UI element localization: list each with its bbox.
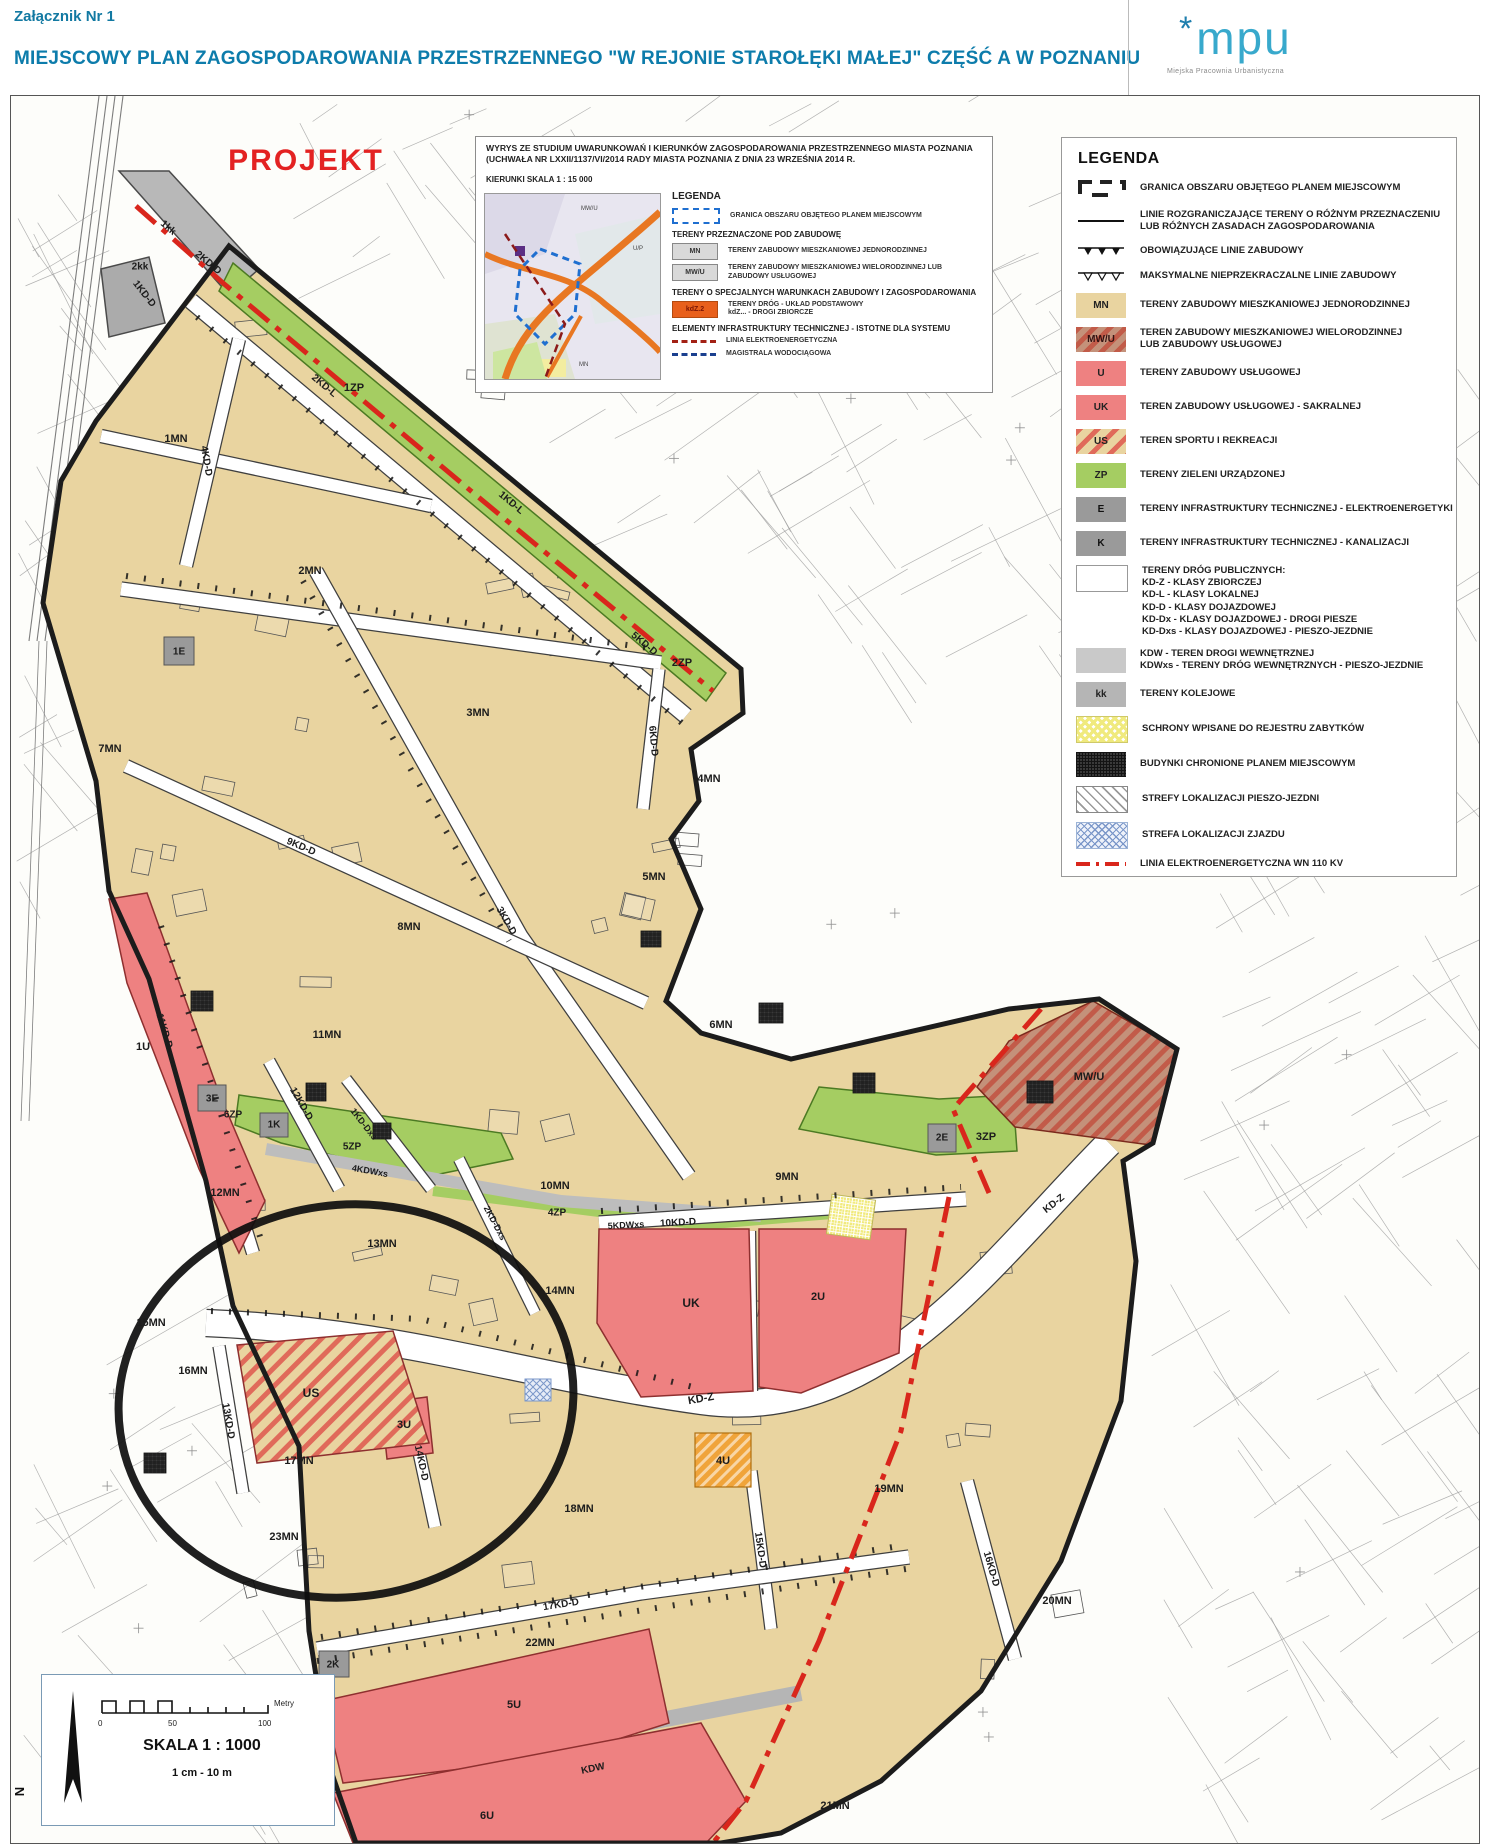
inset-map-label: MN bbox=[579, 362, 588, 368]
inset-legend-item: GRANICA OBSZARU OBJĘTEGO PLANEM MIEJSCOW… bbox=[672, 208, 984, 224]
u-swatch-icon: U bbox=[1076, 361, 1126, 386]
mwu-swatch-icon: MW/U bbox=[672, 264, 718, 281]
scale-bar-icon bbox=[98, 1689, 278, 1719]
inset-legend-item: MW/U TERENY ZABUDOWY MIESZKANIOWEJ WIELO… bbox=[672, 264, 984, 282]
inset-legend-item: MN TERENY ZABUDOWY MIESZKANIOWEJ JEDNORO… bbox=[672, 243, 984, 260]
k-swatch-icon: K bbox=[1076, 531, 1126, 556]
building-line-icon bbox=[1076, 243, 1126, 259]
mpu-logo-text: mpu bbox=[1196, 12, 1291, 64]
mpu-logo-mark: *mpu bbox=[1179, 10, 1292, 65]
mpu-logo: *mpu Miejska Pracownia Urbanistyczna bbox=[1128, 0, 1487, 95]
legend-item: MN TERENY ZABUDOWY MIESZKANIOWEJ JEDNORO… bbox=[1076, 293, 1456, 318]
kdz-swatch-icon: kdZ.2 bbox=[672, 301, 718, 318]
inset-scale-note: KIERUNKI SKALA 1 : 15 000 bbox=[486, 175, 592, 184]
uk-swatch-icon: UK bbox=[1076, 395, 1126, 420]
inset-legend-item: kdZ.2 TERENY DRÓG - UKŁAD PODSTAWOWY kdZ… bbox=[672, 301, 984, 319]
legend-item: STREFA LOKALIZACJI ZJAZDU bbox=[1076, 822, 1456, 849]
mn-swatch-icon: MN bbox=[672, 243, 718, 260]
e-swatch-icon: E bbox=[1076, 497, 1126, 522]
studium-mini-map-drawing bbox=[485, 194, 660, 379]
legend-item: GRANICA OBSZARU OBJĘTEGO PLANEM MIEJSCOW… bbox=[1076, 176, 1456, 200]
plan-map-canvas: PROJEKT1MN2MN3MN4MN5MN6MN7MN8MN9MN10MN11… bbox=[10, 95, 1480, 1844]
legend-item: KDW - TEREN DROGI WEWNĘTRZNEJ KDWxs - TE… bbox=[1076, 648, 1456, 673]
scale-ratio: 1 cm - 10 m bbox=[102, 1767, 302, 1779]
page-header: Załącznik Nr 1 MIEJSCOWY PLAN ZAGOSPODAR… bbox=[0, 0, 1487, 95]
public-road-swatch-icon bbox=[1076, 565, 1128, 592]
water-main-icon bbox=[672, 353, 716, 356]
legend-item: LINIE ROZGRANICZAJĄCE TERENY O RÓŻNYM PR… bbox=[1076, 209, 1456, 234]
max-building-line-icon bbox=[1076, 268, 1126, 284]
inset-legend-section: TERENY O SPECJALNYCH WARUNKACH ZABUDOWY … bbox=[672, 288, 984, 297]
legend-item: STREFY LOKALIZACJI PIESZO-JEZDNI bbox=[1076, 786, 1456, 813]
studium-mini-map: MW/U U/P MN bbox=[484, 193, 661, 380]
legend-item: SCHRONY WPISANE DO REJESTRU ZABYTKÓW bbox=[1076, 716, 1456, 743]
mpu-logo-star-icon: * bbox=[1179, 10, 1194, 48]
inset-legend-section: ELEMENTY INFRASTRUKTURY TECHNICZNEJ - IS… bbox=[672, 324, 984, 333]
scale-tick: 50 bbox=[168, 1719, 177, 1728]
north-letter: N bbox=[12, 1787, 27, 1796]
scale-tick: 0 bbox=[98, 1719, 102, 1728]
inset-legend-item: MAGISTRALA WODOCIĄGOWA bbox=[672, 350, 984, 359]
inset-map-label: MW/U bbox=[581, 206, 598, 212]
legend-item: ZP TERENY ZIELENI URZĄDZONEJ bbox=[1076, 463, 1456, 488]
legend-item: TERENY DRÓG PUBLICZNYCH: KD-Z - KLASY ZB… bbox=[1076, 565, 1456, 639]
exit-zone-swatch-icon bbox=[1076, 822, 1128, 849]
scale-box: 0 50 100 Metry SKALA 1 : 1000 1 cm - 10 … bbox=[41, 1674, 335, 1826]
attachment-number: Załącznik Nr 1 bbox=[14, 8, 115, 25]
legend-item: E TERENY INFRASTRUKTURY TECHNICZNEJ - EL… bbox=[1076, 497, 1456, 522]
power-line-110kv-icon bbox=[1076, 858, 1126, 870]
legend-item: U TERENY ZABUDOWY USŁUGOWEJ bbox=[1076, 361, 1456, 386]
north-arrow-icon bbox=[56, 1685, 90, 1815]
zone-4u bbox=[695, 1433, 751, 1487]
shelter-zone bbox=[826, 1194, 875, 1240]
inset-legend-section: TERENY PRZEZNACZONE POD ZABUDOWĘ bbox=[672, 230, 984, 239]
legend-item: kk TERENY KOLEJOWE bbox=[1076, 682, 1456, 707]
kk-swatch-icon: kk bbox=[1076, 682, 1126, 707]
legend-item: MW/U TEREN ZABUDOWY MIESZKANIOWEJ WIELOR… bbox=[1076, 327, 1456, 352]
mn-swatch-icon: MN bbox=[1076, 293, 1126, 318]
legend-item: OBOWIĄZUJĄCE LINIE ZABUDOWY bbox=[1076, 243, 1456, 259]
dividing-line-icon bbox=[1076, 215, 1126, 227]
inset-map-label: U/P bbox=[633, 246, 643, 252]
scale-unit: Metry bbox=[274, 1699, 294, 1708]
studium-inset-box: WYRYS ZE STUDIUM UWARUNKOWAŃ I KIERUNKÓW… bbox=[475, 136, 993, 393]
legend-box: LEGENDA GRANICA OBSZARU OBJĘTEGO PLANEM … bbox=[1061, 137, 1457, 877]
plan-boundary-icon bbox=[1076, 176, 1126, 200]
page-title: MIEJSCOWY PLAN ZAGOSPODAROWANIA PRZESTRZ… bbox=[14, 48, 1140, 70]
shelter-swatch-icon bbox=[1076, 716, 1128, 743]
zjazd-zone bbox=[525, 1379, 551, 1401]
scale-text: SKALA 1 : 1000 bbox=[102, 1737, 302, 1755]
pedestrian-zone-swatch-icon bbox=[1076, 786, 1128, 813]
inset-title: WYRYS ZE STUDIUM UWARUNKOWAŃ I KIERUNKÓW… bbox=[486, 143, 986, 165]
us-swatch-icon: US bbox=[1076, 429, 1126, 454]
power-line-icon bbox=[672, 340, 716, 343]
boundary-dashed-icon bbox=[672, 208, 720, 224]
zp-swatch-icon: ZP bbox=[1076, 463, 1126, 488]
inset-legend-title: LEGENDA bbox=[672, 191, 984, 202]
legend-title: LEGENDA bbox=[1078, 150, 1456, 168]
mwu-swatch-icon: MW/U bbox=[1076, 327, 1126, 352]
legend-item: MAKSYMALNE NIEPRZEKRACZALNE LINIE ZABUDO… bbox=[1076, 268, 1456, 284]
legend-item: LINIA ELEKTROENERGETYCZNA WN 110 KV bbox=[1076, 858, 1456, 870]
legend-item: US TEREN SPORTU I REKREACJI bbox=[1076, 429, 1456, 454]
legend-item: UK TEREN ZABUDOWY USŁUGOWEJ - SAKRALNEJ bbox=[1076, 395, 1456, 420]
scale-tick: 100 bbox=[258, 1719, 271, 1728]
inset-legend: LEGENDA GRANICA OBSZARU OBJĘTEGO PLANEM … bbox=[672, 189, 984, 363]
protected-buildings-swatch-icon bbox=[1076, 752, 1126, 777]
legend-item: K TERENY INFRASTRUKTURY TECHNICZNEJ - KA… bbox=[1076, 531, 1456, 556]
legend-item: BUDYNKI CHRONIONE PLANEM MIEJSCOWYM bbox=[1076, 752, 1456, 777]
kdw-swatch-icon bbox=[1076, 648, 1126, 673]
inset-legend-item: LINIA ELEKTROENERGETYCZNA bbox=[672, 337, 984, 346]
mpu-logo-subtitle: Miejska Pracownia Urbanistyczna bbox=[1167, 68, 1284, 75]
